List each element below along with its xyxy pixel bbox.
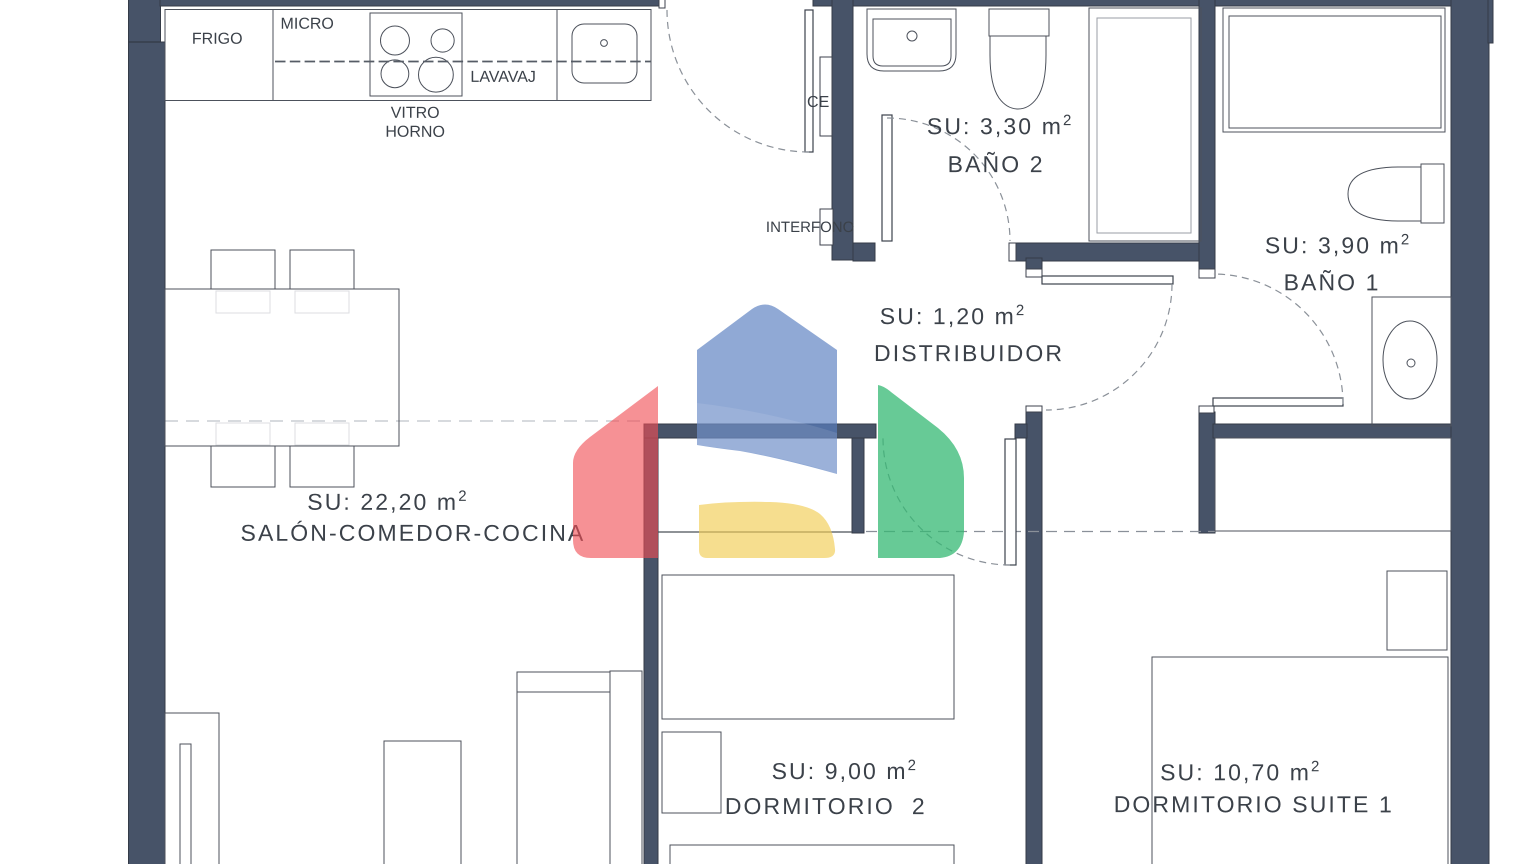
svg-text:SU: 10,70 m2: SU: 10,70 m2 [1160,758,1321,785]
svg-text:SU: 3,90 m2: SU: 3,90 m2 [1265,231,1412,258]
svg-text:SU: 1,20 m2: SU: 1,20 m2 [880,302,1027,329]
svg-text:VITRO: VITRO [391,105,440,122]
svg-text:CE: CE [807,94,829,111]
svg-text:SU: 9,00 m2: SU: 9,00 m2 [772,757,919,784]
svg-text:SU: 3,30 m2: SU: 3,30 m2 [927,112,1074,139]
svg-text:INTERFONO: INTERFONO [766,219,854,236]
svg-text:BAÑO 2: BAÑO 2 [948,151,1045,177]
svg-text:DISTRIBUIDOR: DISTRIBUIDOR [874,340,1064,366]
svg-text:DORMITORIO SUITE 1: DORMITORIO SUITE 1 [1114,791,1394,817]
svg-text:LAVAVAJ: LAVAVAJ [470,69,536,86]
svg-text:SU: 22,20 m2: SU: 22,20 m2 [307,488,468,515]
svg-text:MICRO: MICRO [281,16,334,33]
svg-text:FRIGO: FRIGO [192,31,243,48]
svg-text:HORNO: HORNO [385,124,445,141]
svg-text:SALÓN-COMEDOR-COCINA: SALÓN-COMEDOR-COCINA [241,520,586,546]
svg-text:DORMITORIO 2: DORMITORIO 2 [725,793,927,819]
svg-text:BAÑO 1: BAÑO 1 [1284,269,1381,295]
